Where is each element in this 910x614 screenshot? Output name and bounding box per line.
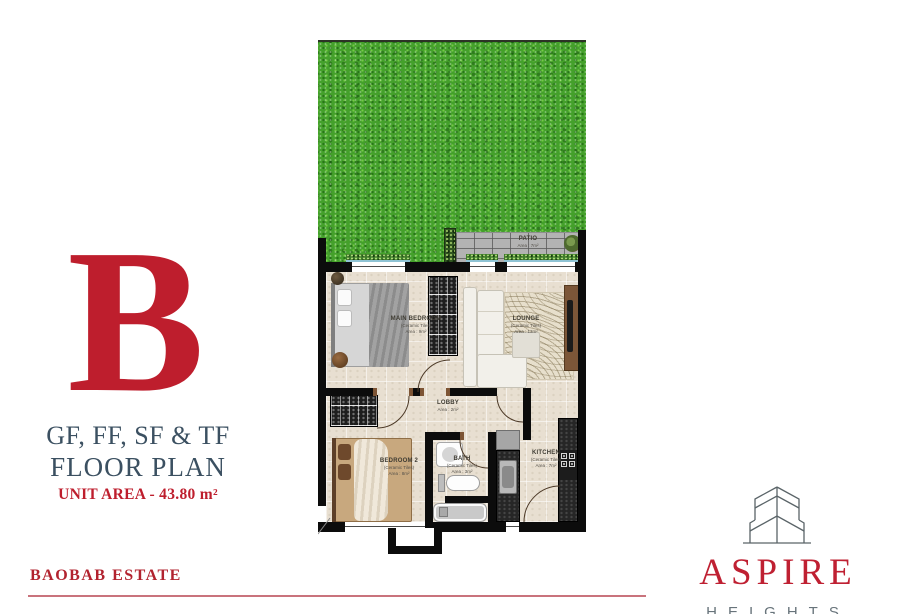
building-icon <box>742 486 812 546</box>
room-label-bedroom2: BEDROOM 2 (Ceramic Tiles) Area : 8m² <box>363 458 435 476</box>
door-arcs <box>318 40 586 554</box>
room-label-kitchen: KITCHEN (Ceramic Tiles) Area : 7m² <box>510 450 582 468</box>
room-label-main-bedroom: MAIN BEDROOM (Ceramic Tiles) Area : 9m² <box>380 316 452 334</box>
block-letter: B <box>62 226 210 411</box>
plan-levels: GF, FF, SF & TF <box>18 421 258 451</box>
footer-divider <box>28 595 646 597</box>
unit-area: UNIT AREA - 43.80 m² <box>18 486 258 504</box>
floor-plan-page: B GF, FF, SF & TF FLOOR PLAN UNIT AREA -… <box>0 0 910 614</box>
brand-subtitle: HEIGHTS <box>690 604 866 614</box>
room-label-bath: BATH (Ceramic Tiles) Area : 3m² <box>440 456 484 474</box>
brand-name: ASPIRE <box>690 551 866 594</box>
floor-plan-graphic: PATIO Area : 7m² MAIN BEDROOM (Ceramic T… <box>318 40 586 554</box>
room-label-patio: PATIO Area : 7m² <box>503 236 553 249</box>
room-label-lounge: LOUNGE (Ceramic Tiles) Area : 13m² <box>490 316 562 334</box>
plan-title-block: GF, FF, SF & TF FLOOR PLAN UNIT AREA - 4… <box>18 421 258 504</box>
plan-title: FLOOR PLAN <box>18 452 258 483</box>
estate-name: BAOBAB ESTATE <box>30 567 182 585</box>
room-label-lobby: LOBBY Area : 2m² <box>422 400 474 413</box>
